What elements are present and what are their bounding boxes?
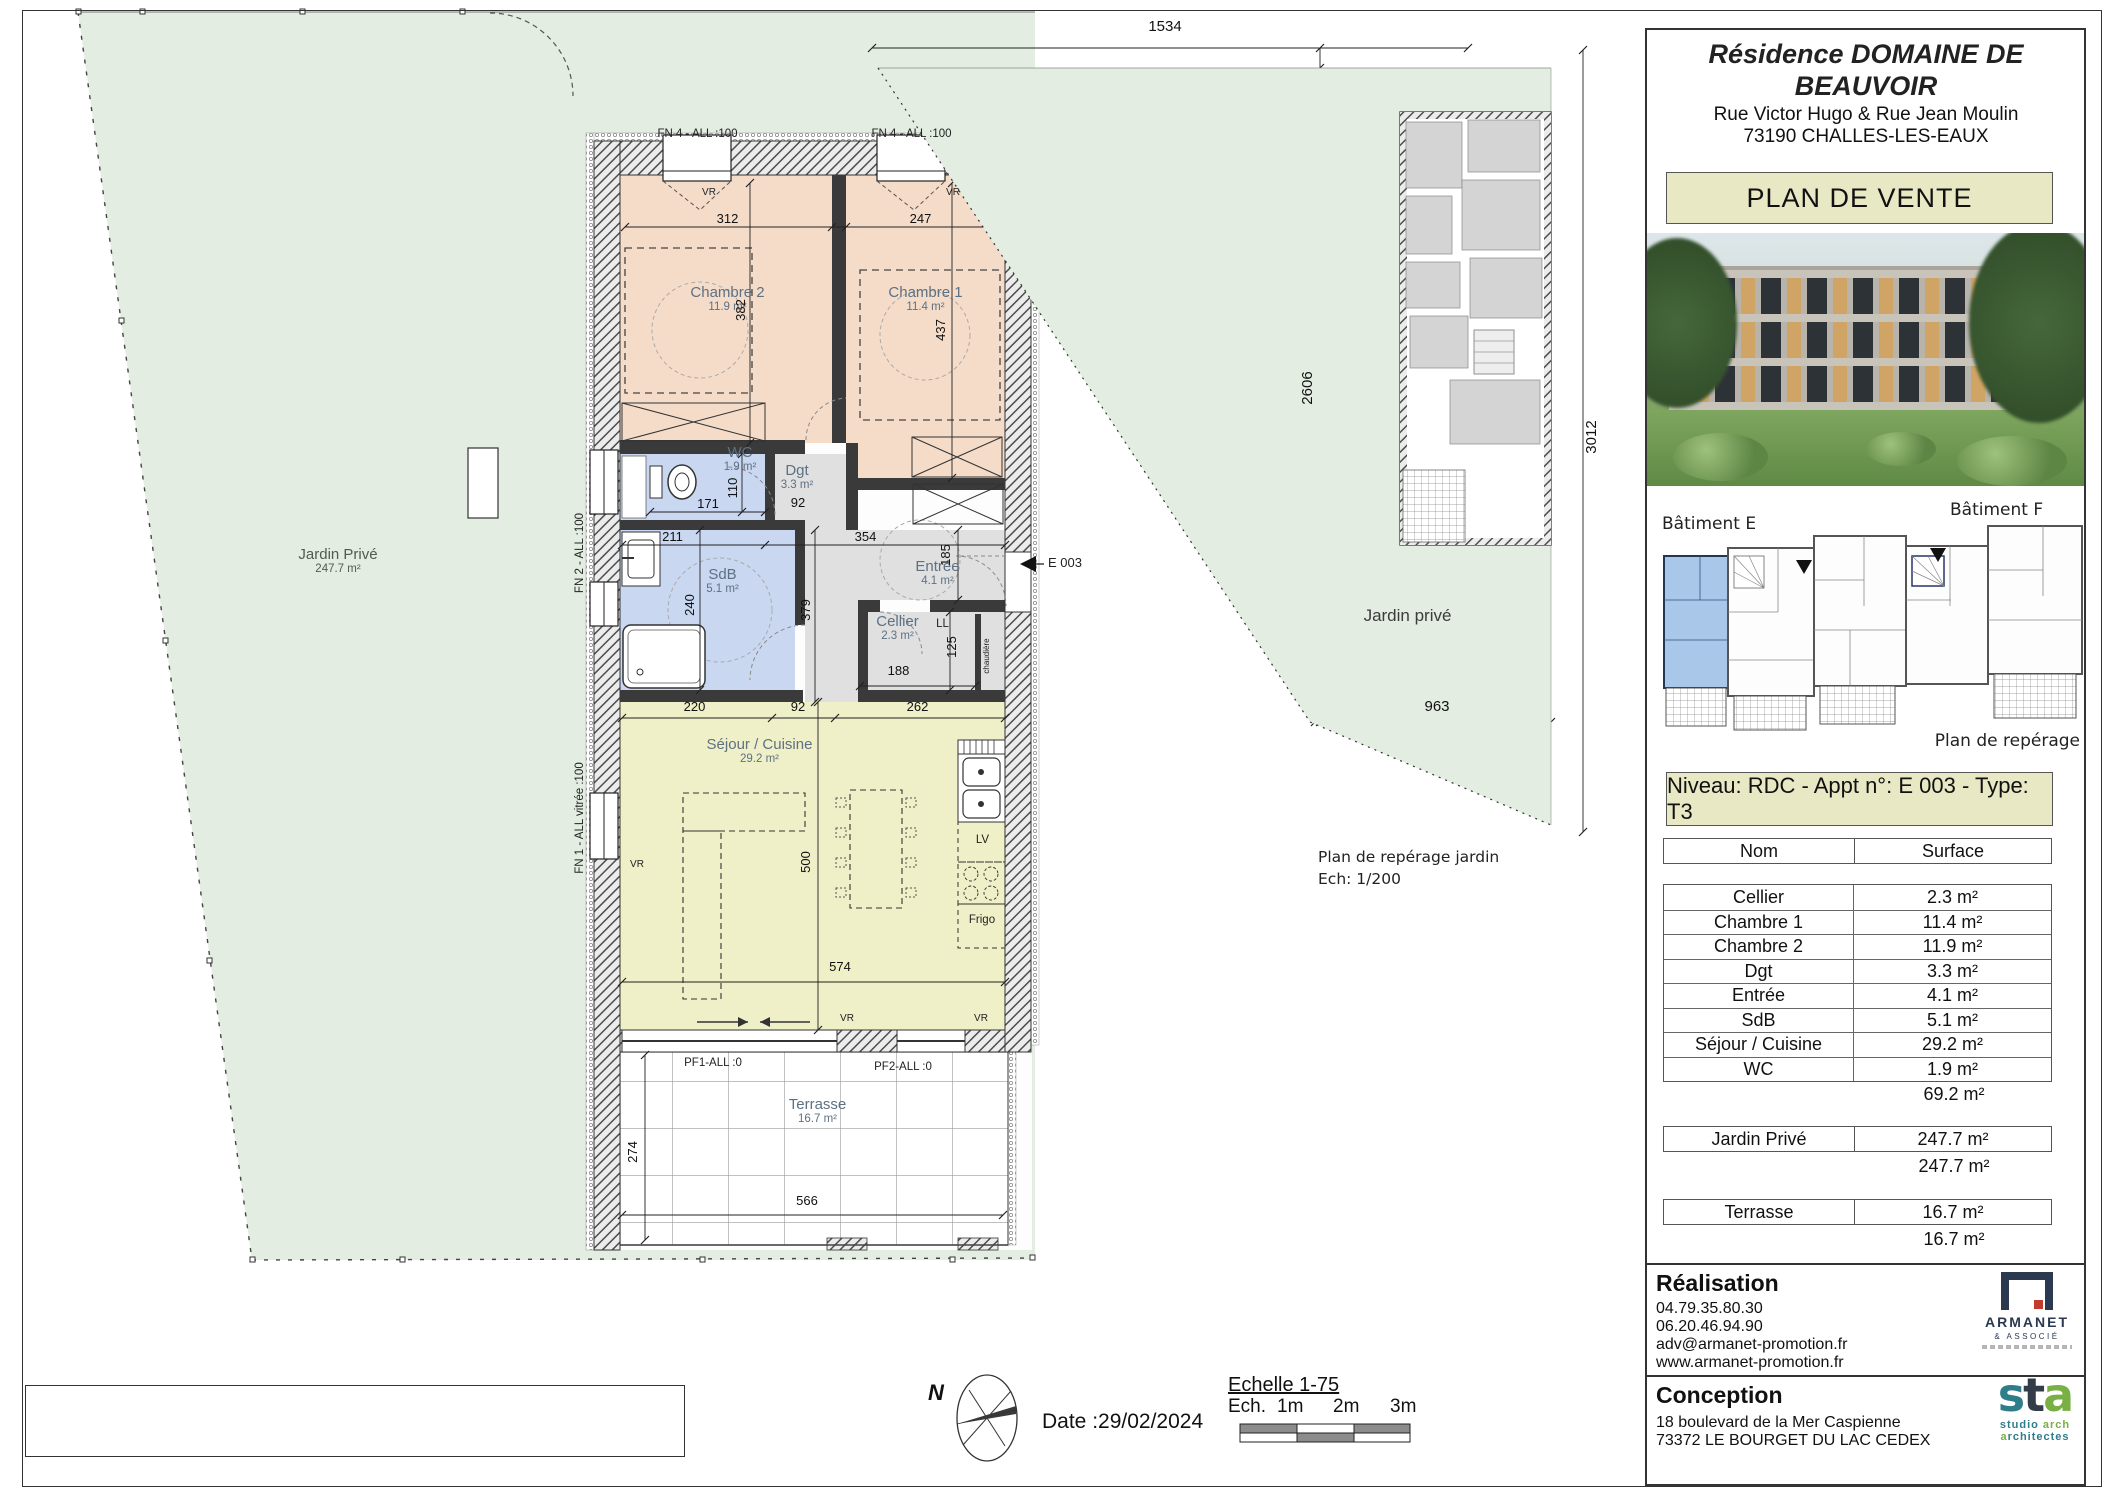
label-vr: VR <box>938 186 968 200</box>
label-fn4-a: FN 4 - ALL :100 <box>640 127 755 141</box>
dim-cellier-w: 188 <box>876 664 921 678</box>
dim-sejour-w: 574 <box>815 960 865 974</box>
label-fn4-b: FN 4 - ALL :100 <box>854 127 969 141</box>
sta-letter-a: a <box>2043 1368 2072 1422</box>
unit-banner: Niveau: RDC - Appt n°: E 003 - Type: T3 <box>1666 772 2053 826</box>
realisation-email: adv@armanet-promotion.fr <box>1656 1336 1847 1354</box>
plan-de-vente-banner: PLAN DE VENTE <box>1666 172 2053 224</box>
sta-line1: studio arch <box>1985 1419 2085 1431</box>
realisation-website: www.armanet-promotion.fr <box>1656 1354 1844 1372</box>
surface-row: Chambre 1 11.4 m² <box>1664 910 2051 935</box>
label-terrasse: Terrasse 16.7 m² <box>755 1096 880 1126</box>
disclaimer-box <box>25 1385 685 1457</box>
building-photo <box>1647 233 2084 486</box>
surface-row-value: 3.3 m² <box>1854 960 2051 984</box>
dim-sejour-a: 220 <box>672 700 717 714</box>
armanet-sub: & ASSOCIÉ <box>1972 1332 2082 1341</box>
label-fn1: FN 1 - ALL vitrée :100 <box>573 741 587 895</box>
scale-tick-3m: 3m <box>1390 1396 1420 1418</box>
surface-row-value: 2.3 m² <box>1854 885 2051 910</box>
label-entrance-e003: E 003 <box>1048 556 1108 570</box>
surface-row: WC 1.9 m² <box>1664 1057 2051 1082</box>
surface-row: Cellier 2.3 m² <box>1664 885 2051 910</box>
surface-row-name: Entrée <box>1664 984 1854 1008</box>
conception-address1: 18 boulevard de la Mer Caspienne <box>1656 1414 1901 1432</box>
armanet-logo: ARMANET & ASSOCIÉ <box>1972 1272 2082 1349</box>
dim-chambre1-h: 437 <box>934 300 948 360</box>
terrasse-row-value: 16.7 m² <box>1855 1200 2051 1224</box>
label-vr: VR <box>966 1012 996 1026</box>
label-jardin-locator: Jardin privé <box>1340 606 1475 626</box>
surface-row-name: SdB <box>1664 1009 1854 1033</box>
conception-address2: 73372 LE BOURGET DU LAC CEDEX <box>1656 1432 1930 1450</box>
dim-entree-w: 354 <box>843 530 888 544</box>
surface-row: Entrée 4.1 m² <box>1664 983 2051 1008</box>
surface-row-name: Cellier <box>1664 885 1854 910</box>
surface-row-value: 11.9 m² <box>1854 935 2051 959</box>
dim-wc-h: 110 <box>726 458 740 518</box>
label-pf1: PF1-ALL :0 <box>658 1056 768 1070</box>
scale-prefix: Ech. <box>1228 1396 1272 1418</box>
surface-row-name: WC <box>1664 1058 1854 1082</box>
surface-row-value: 5.1 m² <box>1854 1009 2051 1033</box>
north-label: N <box>928 1380 944 1406</box>
dim-sejour-h: 500 <box>799 832 813 892</box>
residence-address-line1: Rue Victor Hugo & Rue Jean Moulin <box>1650 104 2082 126</box>
armanet-tagline <box>1982 1345 2072 1349</box>
dim-dgt-w: 92 <box>778 496 818 510</box>
dim-sejour-b: 92 <box>778 700 818 714</box>
armanet-arch-icon <box>2001 1272 2053 1310</box>
armanet-red-square-icon <box>2034 1300 2043 1309</box>
dim-cellier-h: 125 <box>945 617 959 677</box>
surface-row: Chambre 2 11.9 m² <box>1664 934 2051 959</box>
sta-wordmark: sta <box>1985 1376 2085 1415</box>
dim-hall-h: 379 <box>799 580 813 640</box>
dim-entree-h: 185 <box>939 525 953 585</box>
surface-row-name: Chambre 1 <box>1664 911 1854 935</box>
dim-sdb-h: 240 <box>683 575 697 635</box>
conception-heading: Conception <box>1656 1382 1783 1409</box>
residence-title: Résidence DOMAINE DE BEAUVOIR <box>1650 38 2082 103</box>
surface-row-value: 29.2 m² <box>1854 1033 2051 1057</box>
dim-jardin-bottom: 963 <box>1412 700 1462 714</box>
batiment-f-label: Bâtiment F <box>1950 500 2043 520</box>
dim-terrasse-w: 566 <box>783 1194 831 1208</box>
photo-bush <box>1673 433 1768 481</box>
realisation-heading: Réalisation <box>1656 1270 1779 1297</box>
terrasse-total: 16.7 m² <box>1856 1229 2052 1250</box>
label-sejour: Séjour / Cuisine 29.2 m² <box>697 736 822 766</box>
sta-line2: architectes <box>1985 1431 2085 1443</box>
dim-jardin-right: 3012 <box>1585 407 1599 467</box>
photo-bush <box>1866 432 1936 466</box>
dim-jardin-left: 2606 <box>1301 358 1315 418</box>
label-vr: VR <box>622 858 652 872</box>
photo-bush <box>1957 436 2067 486</box>
label-chaudiere: chaudière <box>980 626 994 686</box>
label-dgt: Dgt 3.3 m² <box>762 462 832 492</box>
surface-row-value: 11.4 m² <box>1854 911 2051 935</box>
sta-letter-t: t <box>2023 1368 2043 1422</box>
jardin-row: Jardin Privé 247.7 m² <box>1663 1126 2052 1152</box>
sta-letter-s: s <box>1998 1368 2023 1422</box>
surface-row-name: Séjour / Cuisine <box>1664 1033 1854 1057</box>
date-label: Date :29/02/2024 <box>1042 1410 1203 1434</box>
label-vr: VR <box>832 1012 862 1026</box>
label-chambre1: Chambre 1 11.4 m² <box>858 284 993 314</box>
key-plan-caption: Plan de repérage <box>1880 731 2080 751</box>
armanet-name: ARMANET <box>1972 1314 2082 1330</box>
label-fn2: FN 2 - ALL :100 <box>573 491 587 615</box>
label-lv: LV <box>965 833 1000 847</box>
surface-row-name: Dgt <box>1664 960 1854 984</box>
dim-chambre2-h: 382 <box>734 280 748 340</box>
jardin-row-value: 247.7 m² <box>1855 1127 2051 1151</box>
scale-title: Echelle 1-75 <box>1228 1374 1339 1397</box>
dim-sejour-c: 262 <box>895 700 940 714</box>
surface-row: SdB 5.1 m² <box>1664 1008 2051 1033</box>
terrasse-row: Terrasse 16.7 m² <box>1663 1199 2052 1225</box>
realisation-divider <box>1645 1263 2086 1265</box>
rooms-total: 69.2 m² <box>1856 1084 2052 1105</box>
scale-tick-1m: 1m <box>1277 1396 1307 1418</box>
jardin-caption-line2: Ech: 1/200 <box>1318 870 1548 888</box>
label-vr: VR <box>694 186 724 200</box>
jardin-total: 247.7 m² <box>1856 1156 2052 1177</box>
scale-tick-2m: 2m <box>1333 1396 1363 1418</box>
label-pf2: PF2-ALL :0 <box>848 1060 958 1074</box>
surface-table: Cellier 2.3 m² Chambre 1 11.4 m² Chambre… <box>1663 884 2052 1082</box>
surface-row-value: 1.9 m² <box>1854 1058 2051 1082</box>
batiment-e-label: Bâtiment E <box>1662 514 1756 534</box>
col-surface: Surface <box>1855 839 2051 863</box>
label-chambre2: Chambre 2 11.9 m² <box>660 284 795 314</box>
realisation-phone1: 04.79.35.80.30 <box>1656 1300 1763 1318</box>
surface-table-header: Nom Surface <box>1663 838 2052 864</box>
surface-row-name: Chambre 2 <box>1664 935 1854 959</box>
label-jardin-prive: Jardin Privé 247.7 m² <box>268 546 408 576</box>
realisation-phone2: 06.20.46.94.90 <box>1656 1318 1763 1336</box>
dim-jardin-top: 1534 <box>1135 20 1195 34</box>
jardin-caption-line1: Plan de repérage jardin <box>1318 848 1548 866</box>
plan-de-vente-sheet: Résidence DOMAINE DE BEAUVOIR Rue Victor… <box>0 0 2117 1497</box>
dim-terrasse-h: 274 <box>626 1122 640 1182</box>
surface-row: Séjour / Cuisine 29.2 m² <box>1664 1032 2051 1057</box>
dim-chambre2-w: 312 <box>700 212 755 226</box>
col-nom: Nom <box>1664 839 1855 863</box>
surface-row-value: 4.1 m² <box>1854 984 2051 1008</box>
jardin-row-name: Jardin Privé <box>1664 1127 1855 1151</box>
sta-logo: sta studio arch architectes <box>1985 1376 2085 1443</box>
terrasse-row-name: Terrasse <box>1664 1200 1855 1224</box>
dim-wc-w: 171 <box>688 497 728 511</box>
surface-row: Dgt 3.3 m² <box>1664 959 2051 984</box>
dim-chambre1-w: 247 <box>893 212 948 226</box>
residence-address-line2: 73190 CHALLES-LES-EAUX <box>1650 126 2082 148</box>
dim-sdb-w: 211 <box>650 530 695 544</box>
label-frigo: Frigo <box>958 913 1006 927</box>
